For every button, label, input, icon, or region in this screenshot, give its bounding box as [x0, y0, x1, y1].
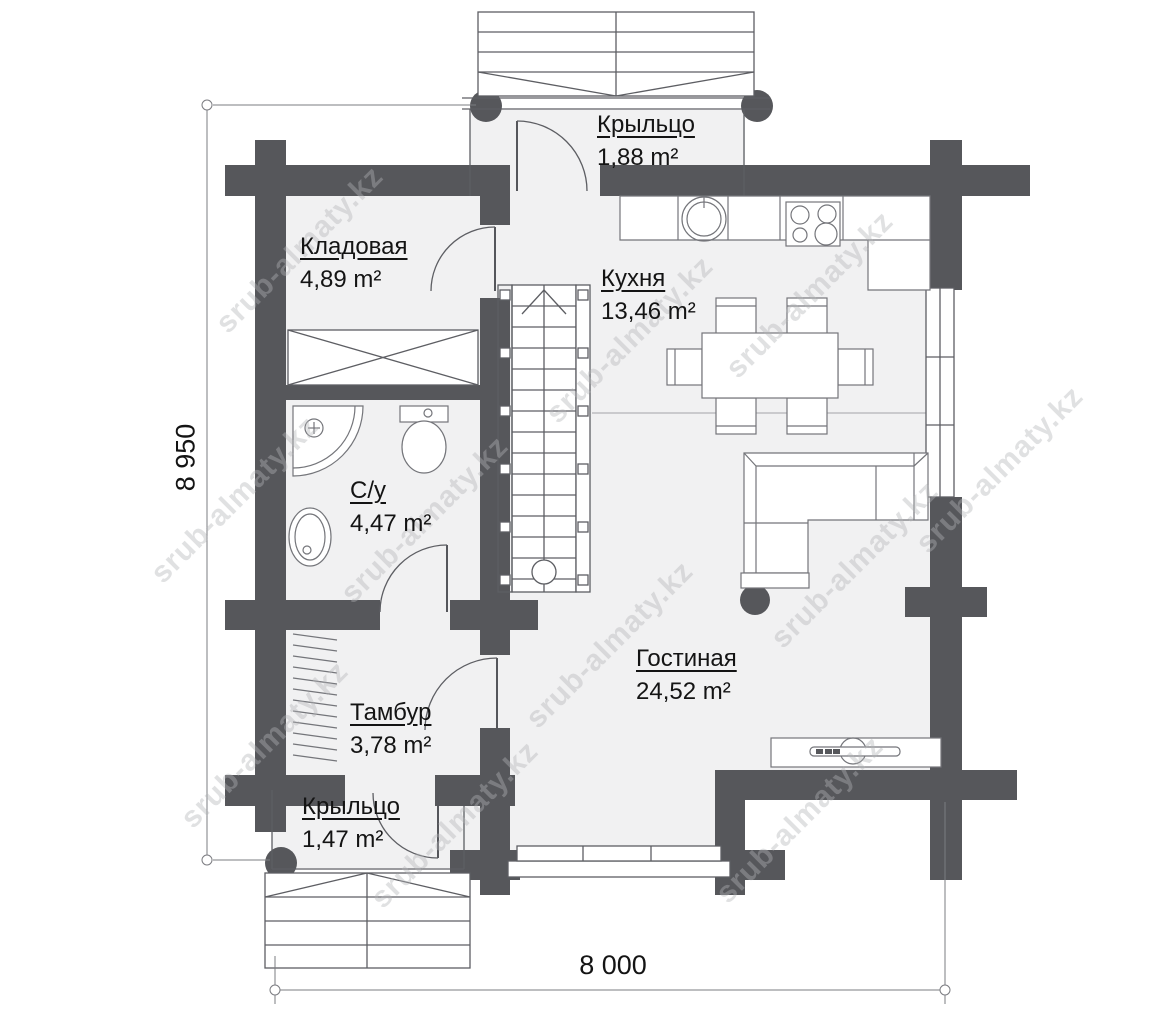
room-area: 13,46 m² [601, 297, 696, 327]
room-name: С/у [350, 476, 431, 506]
dimension-width: 8 000 [548, 950, 678, 981]
room-name: Кухня [601, 264, 696, 294]
chair [667, 349, 702, 385]
chair [716, 398, 756, 434]
room-area: 24,52 m² [636, 677, 737, 707]
room-area: 4,47 m² [350, 509, 431, 539]
chair [838, 349, 873, 385]
room-area: 1,88 m² [597, 143, 695, 173]
sofa-ottoman [741, 573, 809, 588]
room-name: Крыльцо [302, 792, 400, 822]
label-kitchen: Кухня 13,46 m² [601, 264, 696, 327]
chair [716, 298, 756, 334]
room-name: Гостиная [636, 644, 737, 674]
room-area: 3,78 m² [350, 731, 431, 761]
dimension-height: 8 950 [171, 393, 202, 523]
room-area: 4,89 m² [300, 265, 408, 295]
chair [787, 398, 827, 434]
label-living-room: Гостиная 24,52 m² [636, 644, 737, 707]
label-bathroom: С/у 4,47 m² [350, 476, 431, 539]
floor-plan: srub-almaty.kz srub-almaty.kz srub-almat… [0, 0, 1152, 1024]
toilet [402, 421, 446, 473]
stair-newel-post [532, 560, 556, 584]
column-living-room [740, 585, 770, 615]
label-storage: Кладовая 4,89 m² [300, 232, 408, 295]
label-porch-bottom: Крыльцо 1,47 m² [302, 792, 400, 855]
window-bottom [517, 846, 721, 861]
label-vestibule: Тамбур 3,78 m² [350, 698, 431, 761]
room-area: 1,47 m² [302, 825, 400, 855]
storage-shelf [288, 330, 478, 385]
room-name: Тамбур [350, 698, 431, 728]
window-bottom-sill [508, 861, 730, 877]
label-porch-top: Крыльцо 1,88 m² [597, 110, 695, 173]
room-name: Кладовая [300, 232, 408, 262]
room-name: Крыльцо [597, 110, 695, 140]
staircase [498, 285, 590, 592]
